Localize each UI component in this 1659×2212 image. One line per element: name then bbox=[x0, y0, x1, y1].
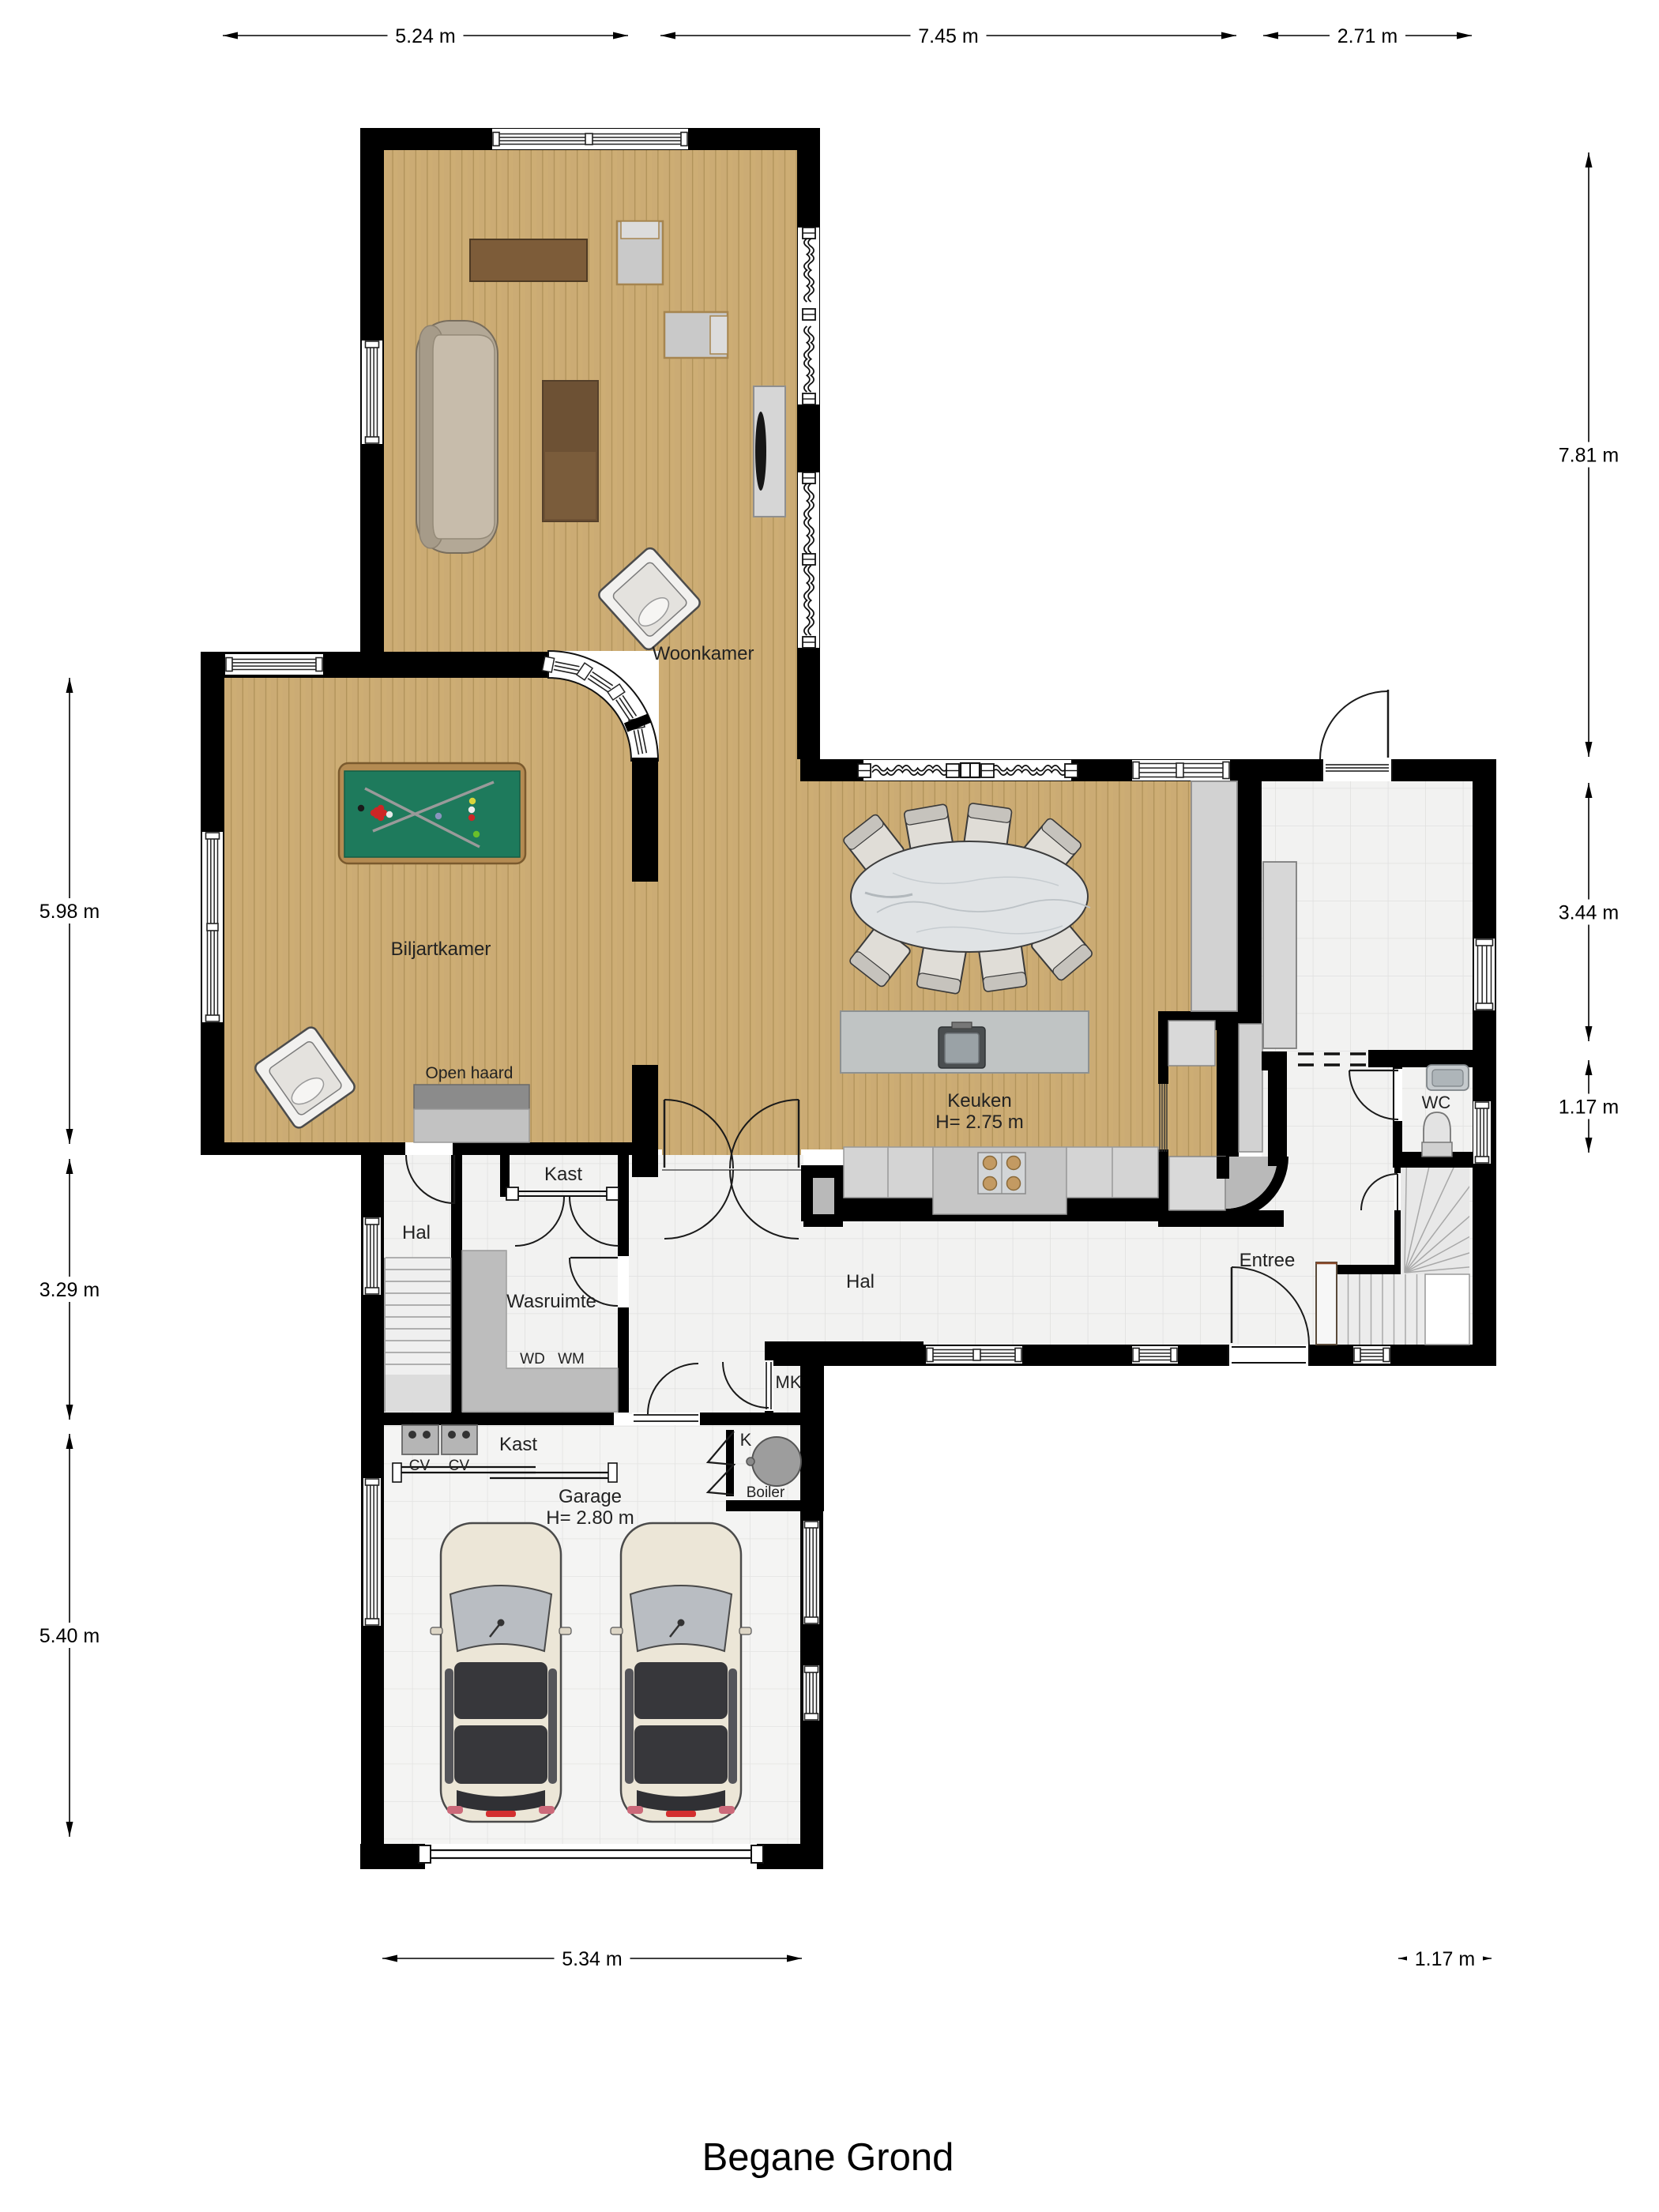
svg-text:Hal: Hal bbox=[846, 1271, 875, 1292]
svg-text:1.17 m: 1.17 m bbox=[1415, 1948, 1475, 1970]
svg-text:WD: WD bbox=[520, 1351, 545, 1367]
svg-text:Kast: Kast bbox=[544, 1164, 582, 1185]
svg-text:K: K bbox=[740, 1430, 752, 1450]
svg-text:Entree: Entree bbox=[1240, 1250, 1296, 1271]
svg-text:Begane Grond: Begane Grond bbox=[702, 2136, 954, 2179]
svg-text:Boiler: Boiler bbox=[747, 1484, 785, 1501]
svg-text:H= 2.75 m: H= 2.75 m bbox=[935, 1112, 1023, 1133]
svg-text:7.45 m: 7.45 m bbox=[918, 25, 978, 47]
svg-text:5.40 m: 5.40 m bbox=[39, 1625, 100, 1647]
svg-text:WC: WC bbox=[1422, 1093, 1451, 1112]
svg-text:Open haard: Open haard bbox=[426, 1064, 513, 1082]
svg-text:CV: CV bbox=[449, 1458, 470, 1474]
svg-text:5.24 m: 5.24 m bbox=[395, 25, 455, 47]
svg-text:1.17 m: 1.17 m bbox=[1559, 1097, 1619, 1119]
svg-text:MK: MK bbox=[776, 1372, 802, 1392]
svg-text:5.98 m: 5.98 m bbox=[39, 901, 100, 923]
svg-text:Woonkamer: Woonkamer bbox=[653, 643, 754, 664]
svg-text:Hal: Hal bbox=[402, 1222, 431, 1243]
svg-text:3.44 m: 3.44 m bbox=[1559, 902, 1619, 924]
svg-text:5.34 m: 5.34 m bbox=[562, 1948, 622, 1970]
svg-text:Keuken: Keuken bbox=[947, 1090, 1011, 1112]
svg-text:CV: CV bbox=[409, 1458, 431, 1474]
svg-text:Garage: Garage bbox=[559, 1486, 622, 1507]
svg-text:Kast: Kast bbox=[499, 1434, 537, 1455]
svg-text:3.29 m: 3.29 m bbox=[39, 1279, 100, 1301]
svg-text:WM: WM bbox=[558, 1351, 585, 1367]
svg-text:Wasruimte: Wasruimte bbox=[506, 1291, 596, 1312]
svg-text:7.81 m: 7.81 m bbox=[1559, 445, 1619, 467]
svg-text:2.71 m: 2.71 m bbox=[1337, 25, 1398, 47]
svg-text:Biljartkamer: Biljartkamer bbox=[391, 939, 491, 960]
svg-text:H= 2.80 m: H= 2.80 m bbox=[546, 1507, 634, 1529]
